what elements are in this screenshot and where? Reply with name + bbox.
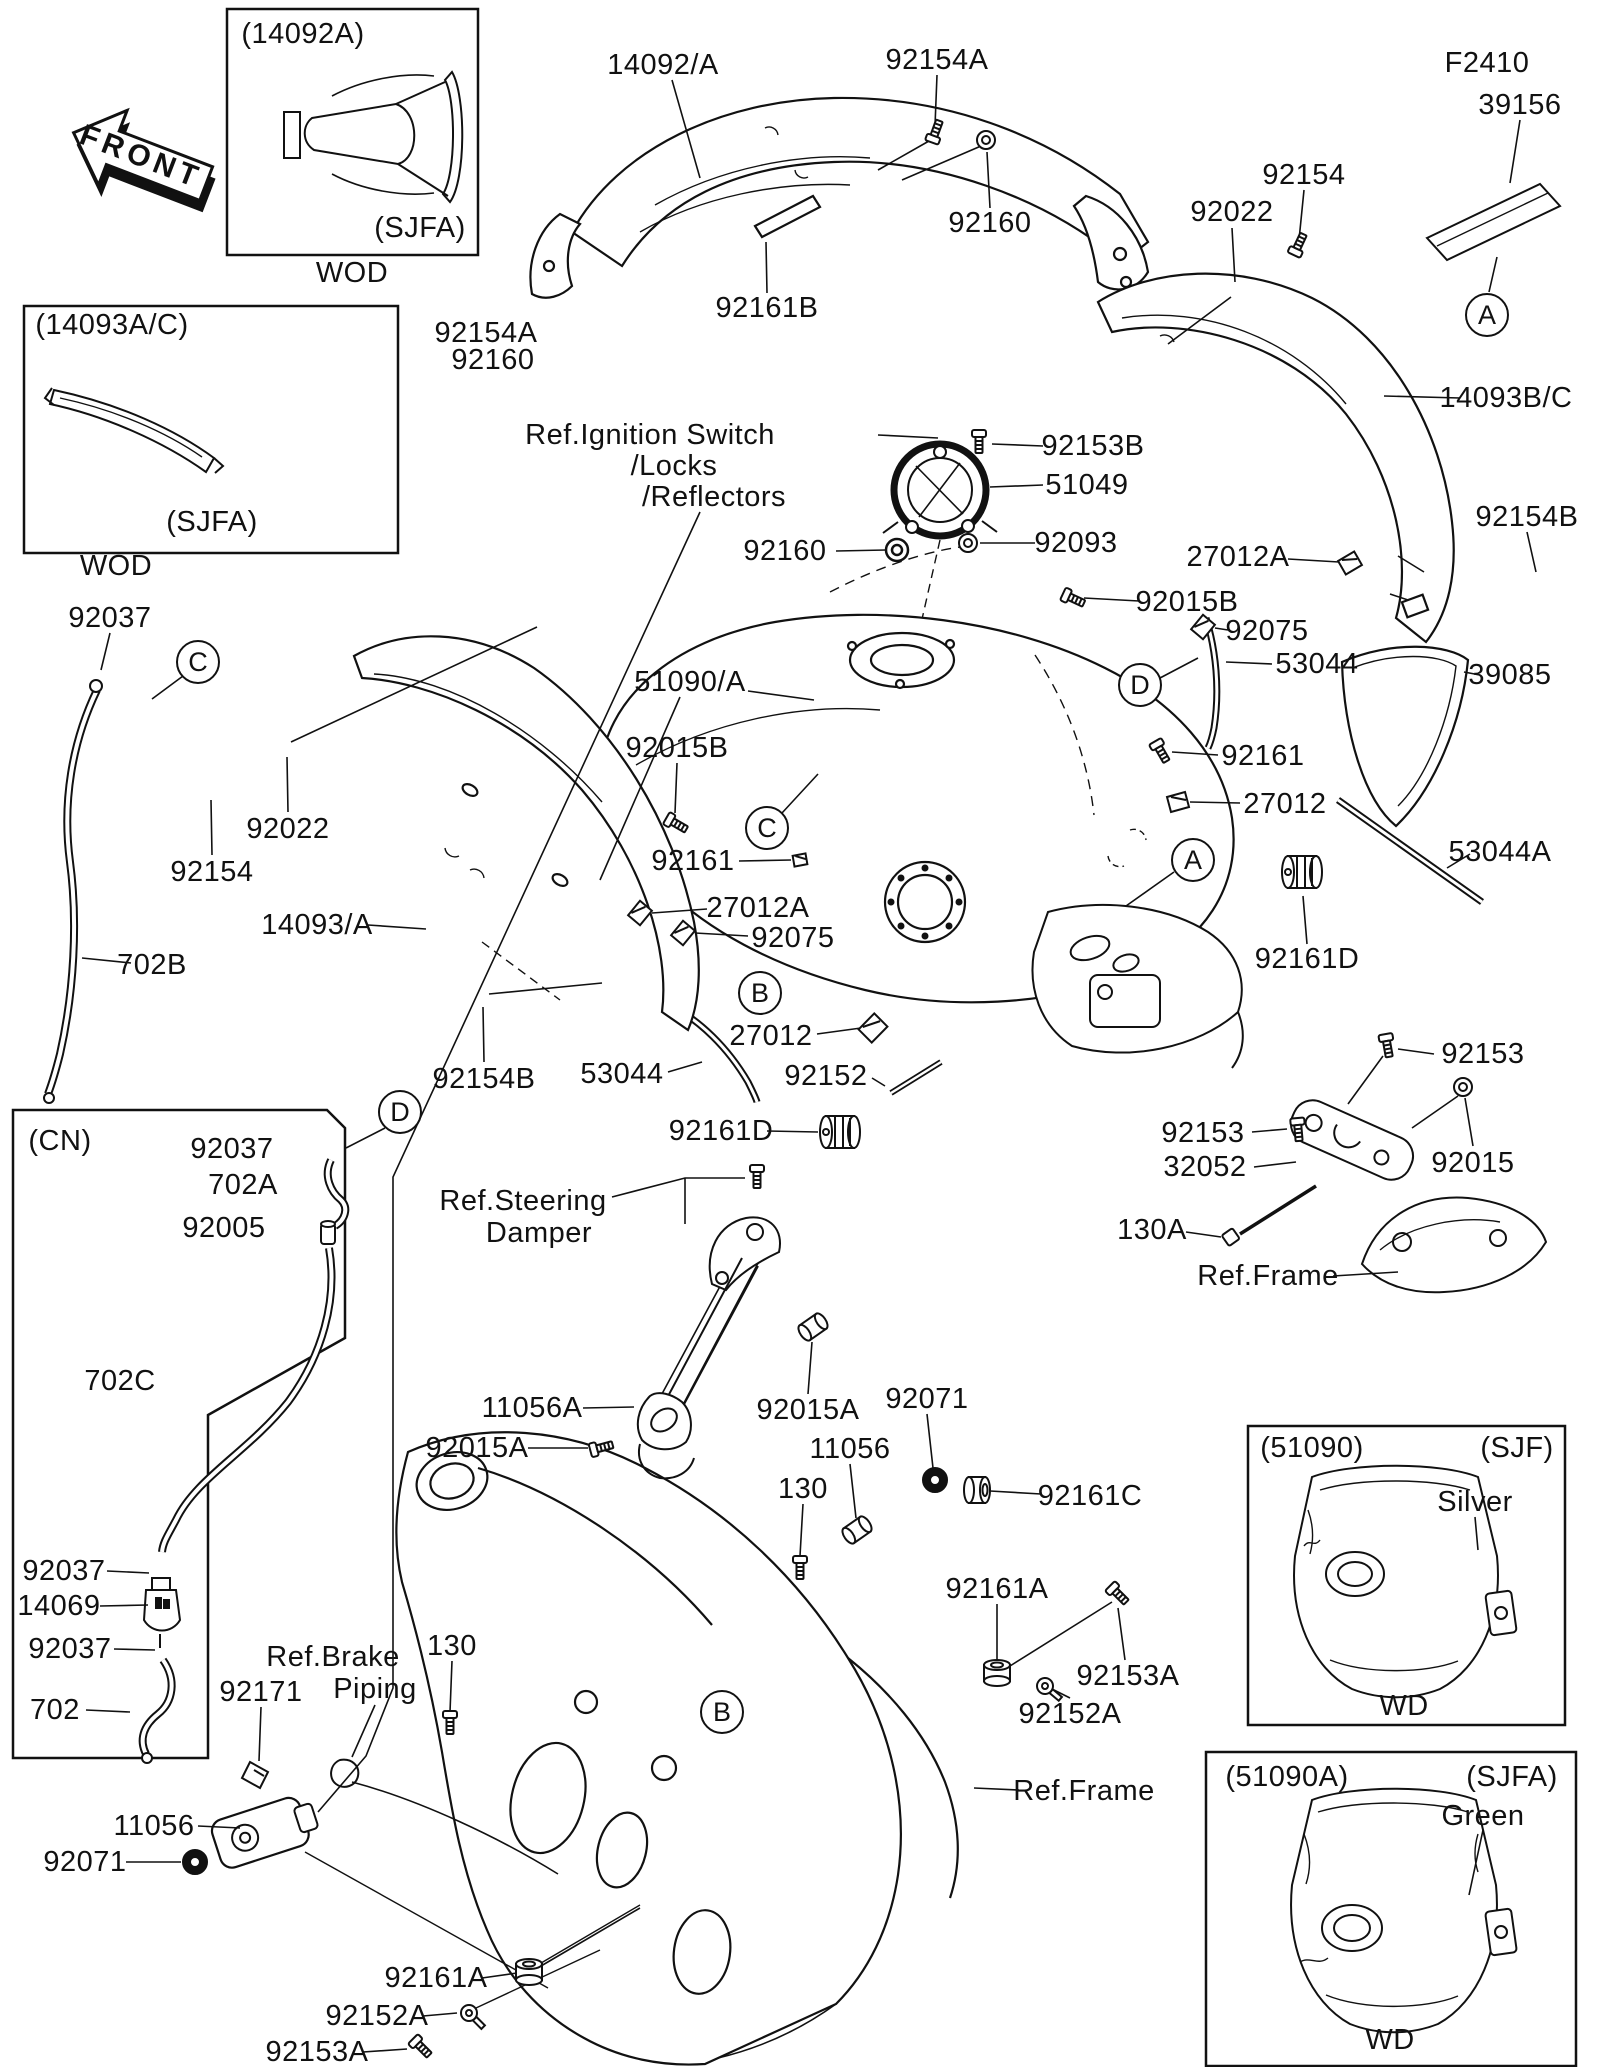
box-variant: (SJFA) [1466,1762,1558,1792]
part-label: 92153A [1077,1661,1180,1691]
part-label: 92161D [669,1116,774,1146]
ref-label: Ref.Frame [1013,1776,1154,1806]
steering-damper-art [638,1217,780,1478]
part-label: 92160 [743,536,826,566]
circled-ref-b: B [738,971,782,1015]
box-variant: (SJFA) [374,213,466,243]
screw-icon [408,2034,434,2060]
part-label: 92037 [22,1556,105,1586]
circled-ref-a: A [1465,293,1509,337]
part-label: 14069 [17,1591,100,1621]
part-label: 92154 [170,857,253,887]
ref-label: Ref.Frame [1197,1261,1338,1291]
part-label: 92153A [266,2037,369,2067]
part-label: 92154A [886,45,989,75]
bush-icon [516,1959,542,1985]
part-label: 11056 [810,1434,891,1464]
part-label: 53044 [580,1059,663,1089]
ref-label: /Locks [631,451,718,481]
ref-label: Damper [486,1218,592,1248]
part-label: 92005 [182,1213,265,1243]
part-label: 92152A [1019,1699,1122,1729]
part-label: 130 [778,1474,828,1504]
pin-92152-art [891,1062,941,1093]
bolt-130a-art [1222,1186,1316,1246]
part-label: 702 [30,1695,80,1725]
part-label: 27012 [729,1021,812,1051]
part-label: 130 [427,1631,477,1661]
part-label: 92022 [1190,197,1273,227]
part-label: 14092/A [607,50,719,80]
part-label: 92154B [1476,502,1579,532]
color-label: Silver [1437,1487,1513,1517]
part-label: 92015 [1431,1148,1514,1178]
part-label: 92171 [219,1677,302,1707]
box-caption: (14093A/C) [35,310,188,340]
screw-icon [972,430,986,453]
part-label: 92160 [948,208,1031,238]
wbolt-icon [458,2002,489,2033]
part-label: 53044 [1275,649,1358,679]
knob-icon [1282,856,1322,888]
part-label: 92160 [451,345,534,375]
top-cover-art [530,98,1148,298]
part-label: 39156 [1478,90,1561,120]
part-label: 92037 [68,603,151,633]
box-variant: (SJFA) [166,507,258,537]
circled-ref-c: C [176,640,220,684]
screw-icon [443,1711,457,1734]
diagram-canvas: FRONT(14092A)(SJFA)WOD(14093A/C)(SJFA)WO… [0,0,1600,2067]
part-label: 27012A [707,893,810,923]
screw-icon [750,1165,764,1188]
gromdark-icon [183,1850,207,1874]
grom-icon [886,539,908,561]
box-footer: WD [1365,2025,1414,2055]
gromdark-icon [923,1468,947,1492]
nut-icon [977,131,995,149]
part-label: 11056 [114,1811,195,1841]
part-label: 92015A [757,1395,860,1425]
part-label: 53044A [1449,837,1552,867]
box-footer: WD [1379,1691,1428,1721]
part-label: 14093/A [261,910,373,940]
bracket-32052-art [1285,1094,1420,1186]
box-caption: (CN) [28,1126,91,1156]
part-label: 92161D [1255,944,1360,974]
frame-subbracket-art [1362,1198,1546,1293]
box-footer: WOD [80,551,152,581]
part-label: 92015B [626,733,729,763]
part-label: 27012A [1187,542,1290,572]
part-label: 130A [1117,1215,1187,1245]
tank-rear-bracket-art [1033,905,1243,1068]
ignition-switch-art [209,1791,548,1988]
part-label: 51049 [1045,470,1128,500]
part-label: 14093B/C [1440,383,1573,413]
bush-icon [964,1477,990,1503]
screw-icon [1378,1033,1396,1058]
box-caption: (51090A) [1225,1762,1348,1792]
part-label: 92037 [28,1634,111,1664]
part-label: 92161 [651,846,734,876]
part-label: 92154 [1262,160,1345,190]
circled-ref-c: C [745,806,789,850]
part-label: 702B [117,950,187,980]
nut-icon [1454,1078,1472,1096]
part-label: 702A [208,1170,278,1200]
inset-part-14092a-art [284,72,462,202]
collar-icon [796,1311,830,1342]
circled-ref-d: D [1118,663,1162,707]
clip-icon [1337,550,1363,575]
inset-part-14093ac-art [45,388,223,473]
screw-icon [1287,231,1309,258]
part-label: F2410 [1445,48,1530,78]
part-label: 92015A [426,1433,529,1463]
strip-39156-art [1427,184,1560,260]
part-label: 92152 [784,1061,867,1091]
box-caption: (14092A) [241,19,364,49]
part-label: 92093 [1034,528,1117,558]
screw-icon [793,1556,807,1579]
screw-icon [589,1438,615,1457]
collar-icon [840,1514,874,1545]
part-label: 92071 [43,1847,126,1877]
cap-trim-51049-art [883,444,997,628]
box-footer: WOD [316,258,388,288]
part-label: 92161B [716,293,819,323]
part-label: 92037 [190,1134,273,1164]
frame-art [396,1240,957,2065]
part-label: 11056A [482,1393,583,1423]
part-label: 702C [84,1366,155,1396]
ref-label: /Reflectors [642,482,786,512]
clip-icon [856,1011,891,1045]
part-label: 92161A [946,1574,1049,1604]
part-label: 92075 [751,923,834,953]
clip-icon [792,852,809,867]
circled-ref-b: B [700,1690,744,1734]
part-label: 39085 [1468,660,1551,690]
circled-ref-a: A [1171,838,1215,882]
screw-icon [1060,587,1087,609]
nut-icon [959,534,977,552]
part-label: 92154B [433,1064,536,1094]
part-label: 51090/A [634,667,746,697]
strip-92161b-art [755,196,820,237]
part-label: 27012 [1243,789,1326,819]
ref-label: Piping [333,1674,417,1704]
part-label: 92153 [1441,1039,1524,1069]
ref-label: Ref.Brake [266,1642,399,1672]
deflector-39085-art [1342,647,1468,826]
part-label: 92161C [1038,1481,1143,1511]
circled-ref-d: D [378,1090,422,1134]
part-label: 92161 [1221,741,1304,771]
box-variant: (SJF) [1480,1433,1553,1463]
part-label: 92022 [246,814,329,844]
knob-icon [820,1116,860,1148]
part-label: 92015B [1136,587,1239,617]
part-label: 92071 [885,1384,968,1414]
ref-label: Ref.Ignition Switch [525,420,775,450]
part-label: 32052 [1163,1152,1246,1182]
color-label: Green [1441,1801,1524,1831]
part-label: 92153B [1042,431,1145,461]
part-label: 92152A [326,2001,429,2031]
part-label: 92075 [1225,616,1308,646]
box-caption: (51090) [1260,1433,1363,1463]
part-label: 92153 [1161,1118,1244,1148]
part-label: 92161A [385,1963,488,1993]
ref-label: Ref.Steering [439,1186,606,1216]
bush-icon [984,1660,1010,1686]
